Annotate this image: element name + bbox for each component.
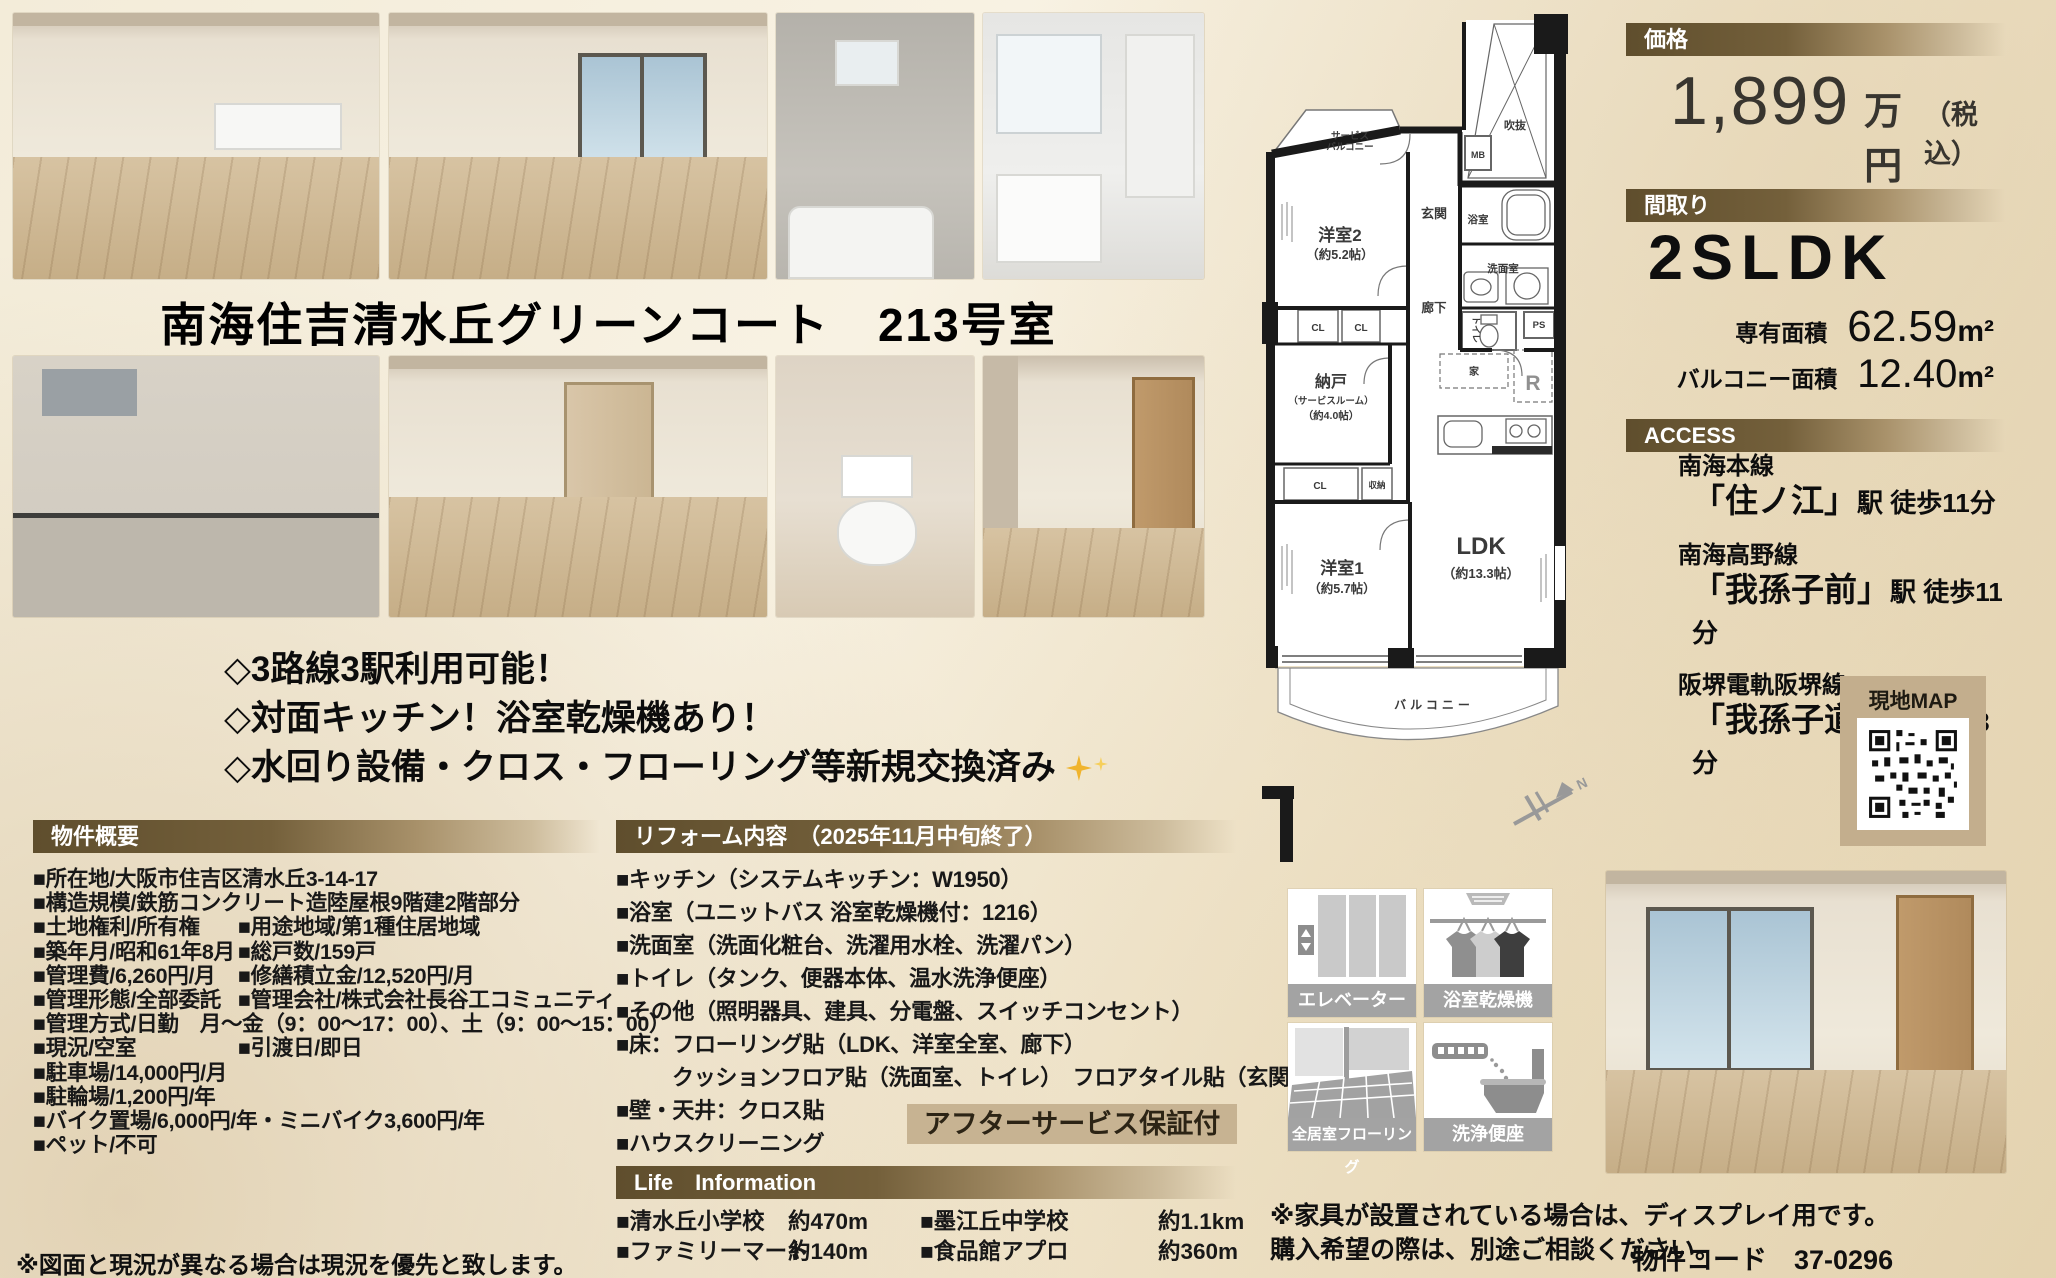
life-row: ■ファミリーマート約140m ■食品館アプロ約360m bbox=[616, 1237, 1238, 1267]
fp-hall-label: 廊下 bbox=[1421, 300, 1447, 315]
svg-text:PS: PS bbox=[1533, 320, 1546, 331]
selling-point-3: ◇水回り設備・クロス・フローリング等新規交換済み bbox=[224, 743, 1184, 792]
photo-hall-door bbox=[1132, 377, 1195, 550]
fp-balcony-label: バルコニー bbox=[1394, 698, 1474, 712]
flooring-icon bbox=[1288, 1023, 1416, 1118]
feature-label: 浴室乾燥機 bbox=[1424, 984, 1552, 1017]
photo-bathtub bbox=[788, 206, 935, 279]
access-route: 南海本線 「住ノ江」駅 徒歩11分 bbox=[1626, 452, 2006, 526]
qr-code-pattern bbox=[1863, 724, 1963, 824]
fp-bath-label: 浴室 bbox=[1468, 213, 1490, 226]
photo-toilet bbox=[776, 356, 974, 617]
bath-dryer-icon bbox=[1424, 889, 1552, 984]
access-route: 南海高野線 「我孫子前」駅 徒歩11分 bbox=[1626, 541, 2006, 656]
photo-door bbox=[1896, 895, 1974, 1088]
photo-ceiling bbox=[13, 13, 379, 26]
svg-text:（約5.2帖）: （約5.2帖） bbox=[1306, 247, 1373, 262]
feature-elevator: エレベーター bbox=[1288, 889, 1416, 1017]
property-title: 南海住吉清水丘グリーンコート 213号室 bbox=[13, 289, 1204, 351]
photo-toilet-bowl bbox=[837, 500, 916, 567]
layout-header-bar: 間取り bbox=[1626, 189, 2006, 222]
overview-row: ■ペット/不可 bbox=[33, 1133, 625, 1157]
fp-fridge-label: R bbox=[1525, 372, 1540, 395]
overview-row: ■管理費/6,260円/月■修繕積立金/12,520円/月 bbox=[33, 964, 625, 988]
life-header-bar: Life Information bbox=[616, 1166, 1236, 1199]
drawing-note: ※図面と現況が異なる場合は現況を優先と致します。 bbox=[16, 1246, 577, 1278]
floor-plan-drawing: サービス バルコニー 洋室2 （約5.2帖） 玄関 MB 吹抜 浴室 洗面室 廊… bbox=[1262, 6, 1618, 864]
selling-point-1: ◇3路線3駅利用可能！ bbox=[224, 645, 1184, 694]
renovation-item: クッションフロア貼（洗面室、トイレ） フロアタイル貼（玄関土間） bbox=[616, 1063, 1241, 1093]
renovation-item: ■浴室（ユニットバス 浴室乾燥機付：1216） bbox=[616, 898, 1241, 928]
renovation-header-bar: リフォーム内容 （2025年11月中旬終了） bbox=[616, 820, 1236, 853]
sparkle-icon bbox=[1094, 757, 1108, 771]
svg-text:（約13.3帖）: （約13.3帖） bbox=[1442, 566, 1519, 581]
fp-room2-label: 洋室2 bbox=[1318, 225, 1361, 245]
photo-window-mullion bbox=[640, 57, 644, 169]
photo-ceiling bbox=[389, 356, 767, 369]
photo-washroom bbox=[983, 13, 1204, 279]
site-map-card: 現地MAP bbox=[1840, 676, 1986, 846]
fp-north-label: N bbox=[1574, 774, 1590, 793]
access-header-bar: ACCESS bbox=[1626, 419, 2006, 452]
photo-bath-window bbox=[835, 40, 898, 87]
price-tax-note: （税込） bbox=[1924, 93, 2006, 171]
overview-row: ■駐車場/14,000円/月 bbox=[33, 1061, 625, 1085]
fp-void-label: 吹抜 bbox=[1504, 118, 1527, 132]
renovation-item: ■キッチン（システムキッチン：W1950） bbox=[616, 865, 1241, 895]
svg-text:（約4.0帖）: （約4.0帖） bbox=[1303, 409, 1360, 422]
overview-row: ■駐輪場/1,200円/年 bbox=[33, 1085, 625, 1109]
overview-header-bar: 物件概要 bbox=[33, 820, 599, 853]
feature-label: 洗浄便座 bbox=[1424, 1118, 1552, 1151]
svg-text:CL: CL bbox=[1313, 481, 1326, 492]
overview-row: ■バイク置場/6,000円/年・ミニバイク3,600円/年 bbox=[33, 1109, 625, 1133]
svg-text:CL: CL bbox=[1354, 323, 1367, 334]
feature-flooring: 全居室フローリング bbox=[1288, 1023, 1416, 1151]
photo-living-large bbox=[1606, 871, 2006, 1173]
photo-countertop bbox=[13, 513, 379, 518]
photo-counter bbox=[214, 103, 342, 150]
price-header-bar: 価格 bbox=[1626, 23, 2006, 56]
overview-row: ■所在地/大阪市住吉区清水丘3-14-17 bbox=[33, 867, 625, 891]
renovation-item: ■床：フローリング貼（LDK、洋室全室、廊下） bbox=[616, 1030, 1241, 1060]
property-code: 物件コード 37-0296 bbox=[1632, 1238, 1893, 1277]
photo-cabinets bbox=[13, 513, 379, 617]
svg-text:CL: CL bbox=[1311, 323, 1324, 334]
photo-window bbox=[1646, 907, 1814, 1072]
photo-vanity bbox=[996, 174, 1102, 263]
selling-point-2: ◇対面キッチン！浴室乾燥機あり！ bbox=[224, 694, 1184, 743]
fp-washroom-label: 洗面室 bbox=[1487, 262, 1519, 275]
fp-service-balcony-label: サービス bbox=[1331, 130, 1369, 142]
photo-living-1 bbox=[13, 13, 379, 279]
price-unit: 万円 bbox=[1864, 80, 1922, 190]
photo-living-2 bbox=[389, 13, 767, 279]
fp-toilet-label: トイレ bbox=[1471, 316, 1481, 343]
photo-bathroom bbox=[776, 13, 974, 279]
overview-row: ■構造規模/鉄筋コンクリート造陸屋根9階建2階部分 bbox=[33, 891, 625, 915]
photo-floor bbox=[1606, 1070, 2006, 1173]
selling-points: ◇3路線3駅利用可能！ ◇対面キッチン！浴室乾燥機あり！ ◇水回り設備・クロス・… bbox=[224, 645, 1184, 792]
photo-hallway bbox=[983, 356, 1204, 617]
photo-shelf bbox=[1125, 34, 1195, 198]
life-information-section: Life Information ■清水丘小学校約470m ■墨江丘中学校約1.… bbox=[616, 1166, 1238, 1267]
fp-ldk-label: LDK bbox=[1456, 533, 1506, 560]
photo-bedroom-closet bbox=[389, 356, 767, 617]
sparkle-icon bbox=[1066, 755, 1092, 781]
after-service-badge: アフターサービス保証付 bbox=[907, 1104, 1237, 1144]
price-amount: 1,899 bbox=[1670, 62, 1850, 140]
renovation-item: ■洗面室（洗面化粧台、洗濯用水栓、洗濯パン） bbox=[616, 931, 1241, 961]
feature-label: 全居室フローリング bbox=[1288, 1118, 1416, 1151]
fp-mb-label: MB bbox=[1471, 150, 1485, 160]
overview-rows: ■所在地/大阪市住吉区清水丘3-14-17 ■構造規模/鉄筋コンクリート造陸屋根… bbox=[33, 867, 625, 1157]
life-row: ■清水丘小学校約470m ■墨江丘中学校約1.1km bbox=[616, 1207, 1238, 1237]
property-overview-section: 物件概要 ■所在地/大阪市住吉区清水丘3-14-17 ■構造規模/鉄筋コンクリー… bbox=[33, 820, 625, 1157]
exclusive-area-row: 専有面積 62.59 m² bbox=[1626, 302, 1994, 352]
photo-range-hood bbox=[42, 369, 137, 416]
overview-row: ■管理形態/全部委託■管理会社/株式会社長谷工コミュニティ bbox=[33, 988, 625, 1012]
floor-plan: サービス バルコニー 洋室2 （約5.2帖） 玄関 MB 吹抜 浴室 洗面室 廊… bbox=[1262, 6, 1618, 864]
photo-toilet-tank bbox=[841, 455, 912, 498]
overview-row: ■土地権利/所有権■用途地域/第1種住居地域 bbox=[33, 915, 625, 939]
svg-text:家: 家 bbox=[1469, 365, 1480, 378]
photo-window-mullion bbox=[1727, 911, 1731, 1068]
washlet-icon bbox=[1424, 1023, 1552, 1118]
life-rows: ■清水丘小学校約470m ■墨江丘中学校約1.1km ■ファミリーマート約140… bbox=[616, 1207, 1238, 1267]
elevator-icon bbox=[1288, 889, 1416, 984]
svg-text:（約5.7帖）: （約5.7帖） bbox=[1308, 581, 1375, 596]
photo-floor bbox=[13, 157, 379, 279]
renovation-item: ■その他（照明器具、建具、分電盤、スイッチコンセント） bbox=[616, 997, 1241, 1027]
balcony-area-row: バルコニー面積 12.40 m² bbox=[1626, 352, 1994, 397]
photo-window bbox=[578, 53, 707, 173]
feature-bath-dryer: 浴室乾燥機 bbox=[1424, 889, 1552, 1017]
real-estate-flyer: 南海住吉清水丘グリーンコート 213号室 ◇3路線3駅利用可能！ ◇対面キッチン… bbox=[0, 0, 2056, 1278]
overview-row: ■築年月/昭和61年8月■総戸数/159戸 bbox=[33, 940, 625, 964]
svg-text:バルコニー: バルコニー bbox=[1326, 141, 1373, 153]
fp-room1-label: 洋室1 bbox=[1320, 558, 1363, 578]
photo-floor bbox=[983, 528, 1204, 617]
qr-code bbox=[1857, 718, 1969, 830]
fp-storage-room-label: 納戸 bbox=[1315, 372, 1347, 391]
feature-washlet: 洗浄便座 bbox=[1424, 1023, 1552, 1151]
layout-type: 2SLDK bbox=[1648, 222, 1895, 294]
svg-text:（サービスルーム）: （サービスルーム） bbox=[1288, 395, 1373, 407]
svg-text:収納: 収納 bbox=[1368, 480, 1385, 490]
site-map-label: 現地MAP bbox=[1840, 685, 1986, 715]
photo-ceiling bbox=[1606, 871, 2006, 884]
feature-label: エレベーター bbox=[1288, 984, 1416, 1017]
furniture-note-line1: ※家具が設置されている場合は、ディスプレイ用です。 bbox=[1270, 1196, 1889, 1232]
renovation-item: ■トイレ（タンク、便器本体、温水洗浄便座） bbox=[616, 964, 1241, 994]
photo-kitchen bbox=[13, 356, 379, 617]
photo-ceiling bbox=[389, 13, 767, 26]
photo-floor bbox=[389, 497, 767, 617]
photo-mirror-cabinet bbox=[996, 34, 1102, 134]
price-line: 1,899 万円 （税込） bbox=[1626, 62, 2006, 154]
overview-row: ■管理方式/日勤 月～金（9：00～17：00）、土（9：00～15：00） bbox=[33, 1012, 625, 1036]
overview-row: ■現況/空室■引渡日/即日 bbox=[33, 1036, 625, 1060]
photo-floor bbox=[389, 157, 767, 279]
fp-entrance-label: 玄関 bbox=[1421, 206, 1447, 221]
